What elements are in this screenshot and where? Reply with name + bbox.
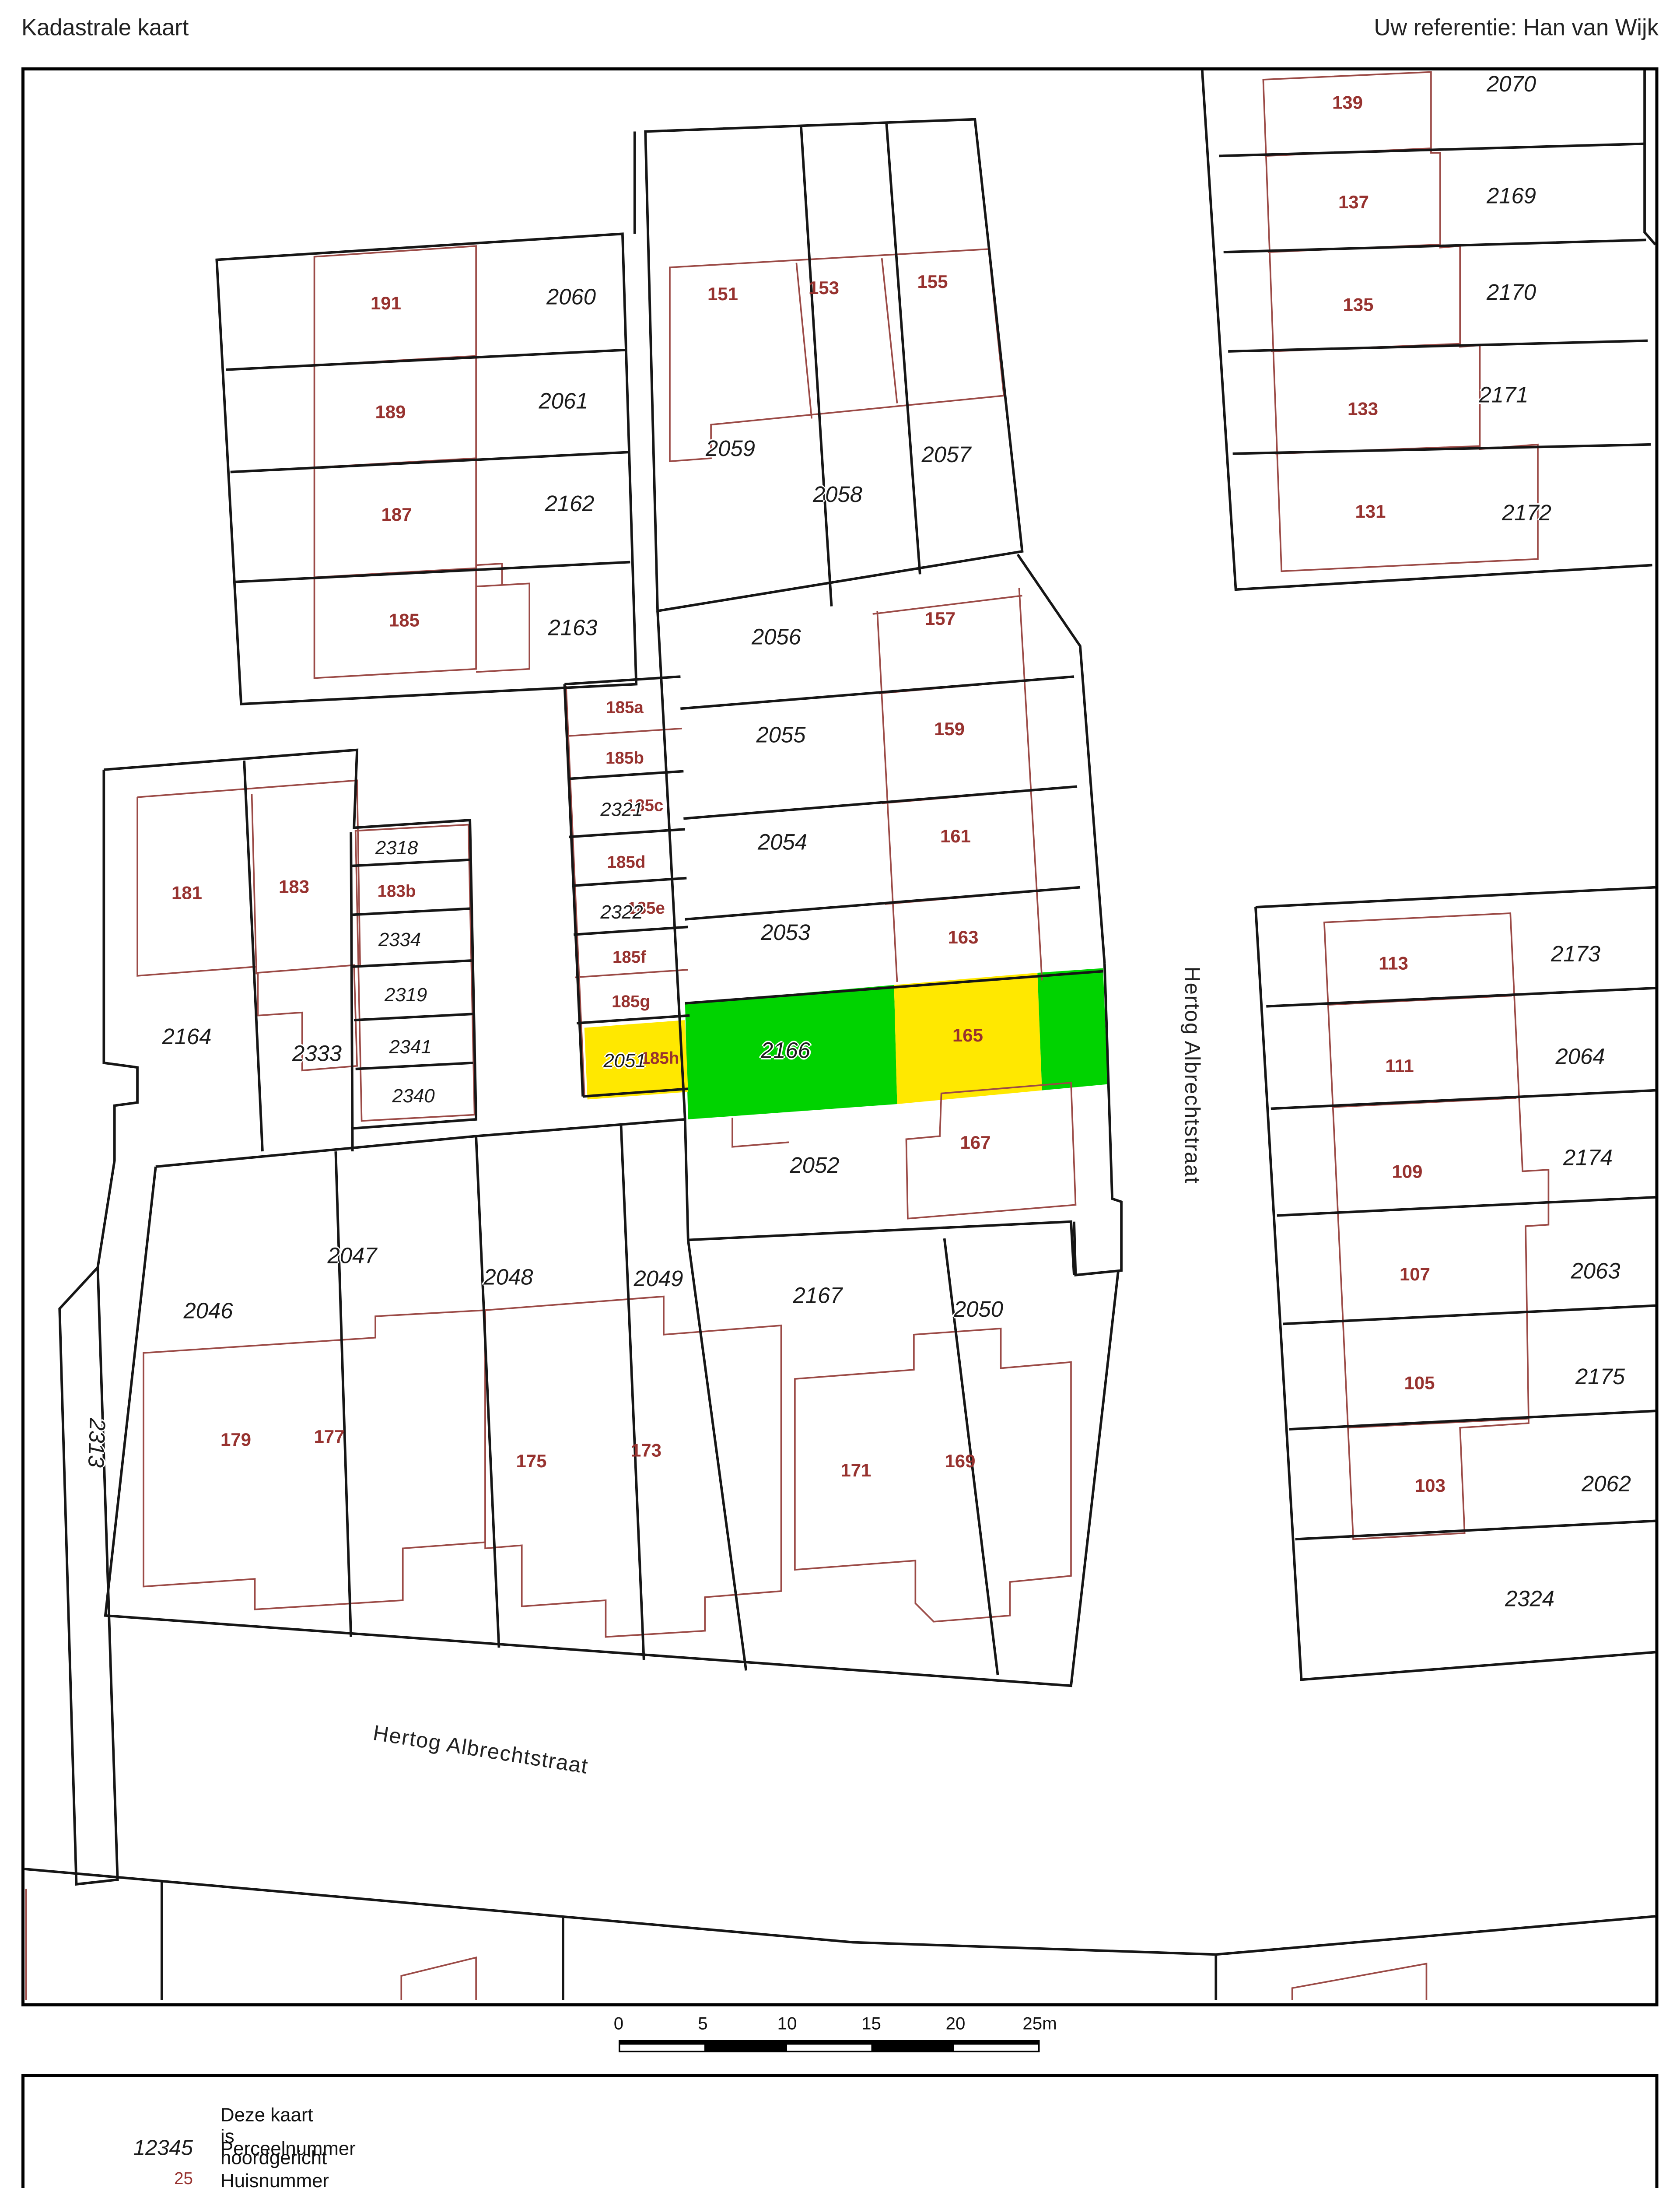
house-number-label: 185b bbox=[605, 751, 644, 768]
house-number-label: 107 bbox=[1400, 1265, 1430, 1283]
house-number-label: 139 bbox=[1332, 94, 1363, 112]
page-title: Kadastrale kaart bbox=[21, 15, 189, 42]
house-number-label: 159 bbox=[934, 720, 965, 738]
scale-bar bbox=[619, 2040, 1040, 2052]
house-number-label: 185h bbox=[641, 1052, 679, 1069]
scalebar-tick-label: 25m bbox=[1022, 2016, 1057, 2034]
scalebar-segment bbox=[955, 2045, 1038, 2051]
parcel-number-label: 2340 bbox=[392, 1087, 434, 1106]
legend-item-label: Perceelnummer bbox=[220, 2137, 356, 2159]
parcel-number-label: 2333 bbox=[292, 1044, 342, 1066]
house-number-label: 169 bbox=[945, 1452, 975, 1470]
legend-parcelnumber-sample: 12345 bbox=[133, 2134, 193, 2159]
house-number-label: 111 bbox=[1385, 1057, 1414, 1075]
house-number-label: 163 bbox=[948, 928, 978, 947]
house-number-label: 105 bbox=[1404, 1374, 1435, 1392]
house-number-label: 181 bbox=[171, 884, 202, 902]
map-geometry bbox=[24, 70, 1655, 2003]
scalebar-tick-label: 0 bbox=[614, 2016, 623, 2034]
parcel-number-label: 2051 bbox=[603, 1052, 646, 1071]
cadastral-map: 1911891871851511531551571591611631651671… bbox=[21, 67, 1659, 2006]
parcel-number-label: 2057 bbox=[922, 445, 971, 468]
parcel-number-label: 2319 bbox=[385, 986, 427, 1005]
parcel-number-label: 2056 bbox=[752, 628, 801, 650]
parcel-number-label: 2175 bbox=[1575, 1367, 1625, 1390]
parcel-number-label: 2313 bbox=[83, 1418, 107, 1468]
parcel-number-label: 2166 bbox=[761, 1041, 810, 1063]
parcel-number-label: 2062 bbox=[1582, 1475, 1631, 1497]
house-number-label: 103 bbox=[1415, 1476, 1445, 1495]
kadastrale-kaart-page: Kadastrale kaart Uw referentie: Han van … bbox=[0, 0, 1680, 2188]
parcel-number-label: 2060 bbox=[546, 288, 596, 310]
parcel-number-label: 2053 bbox=[761, 923, 810, 946]
selected-parcel-2166-fill-east bbox=[1037, 968, 1107, 1090]
house-number-label: 157 bbox=[925, 610, 955, 628]
parcel-number-label: 2048 bbox=[484, 1268, 533, 1290]
house-number-label: 131 bbox=[1355, 502, 1386, 521]
parcel-number-label: 2059 bbox=[706, 439, 755, 462]
house-number-label: 185d bbox=[607, 856, 646, 873]
parcel-number-label: 2172 bbox=[1502, 504, 1551, 526]
parcel-number-label: 2169 bbox=[1487, 186, 1536, 209]
scalebar-segment bbox=[871, 2045, 955, 2051]
parcel-number-label: 2064 bbox=[1556, 1047, 1605, 1069]
parcel-number-label: 2058 bbox=[813, 485, 862, 508]
parcel-number-label: 2162 bbox=[545, 494, 595, 517]
house-number-label: 187 bbox=[381, 505, 412, 524]
parcel-number-label: 2047 bbox=[328, 1246, 377, 1269]
parcel-number-label: 2170 bbox=[1487, 283, 1536, 305]
house-number-label: 151 bbox=[707, 285, 738, 303]
house-number-label: 133 bbox=[1347, 400, 1378, 418]
house-number-label: 113 bbox=[1379, 954, 1408, 973]
house-number-label: 161 bbox=[940, 827, 971, 845]
house-number-label: 137 bbox=[1338, 193, 1369, 211]
house-number-label: 175 bbox=[516, 1452, 546, 1470]
scalebar-tick-label: 5 bbox=[698, 2016, 707, 2034]
house-number-label: 177 bbox=[314, 1427, 344, 1446]
house-number-label: 167 bbox=[960, 1133, 990, 1152]
house-number-label: 153 bbox=[808, 279, 839, 297]
parcel-number-label: 2341 bbox=[389, 1038, 431, 1057]
parcel-number-label: 2173 bbox=[1551, 945, 1600, 967]
house-number-label: 173 bbox=[631, 1441, 661, 1460]
parcel-number-label: 2046 bbox=[184, 1301, 233, 1324]
parcel-number-label: 2167 bbox=[793, 1286, 843, 1308]
house-number-label: 185a bbox=[606, 701, 644, 718]
legend-symbol-none bbox=[49, 2101, 196, 2129]
parcel-number-label: 2322 bbox=[600, 903, 643, 922]
scalebar-tick-label: 10 bbox=[777, 2016, 797, 2034]
scalebar-tick-label: 15 bbox=[861, 2016, 881, 2034]
scalebar-segment bbox=[787, 2045, 871, 2051]
legend-symbol-house-number: 25 bbox=[49, 2167, 196, 2188]
house-number-label: 183b bbox=[378, 884, 416, 901]
parcel-number-label: 2063 bbox=[1571, 1262, 1620, 1284]
scalebar-segment bbox=[704, 2045, 787, 2051]
parcel-number-label: 2334 bbox=[378, 931, 421, 950]
parcel-number-label: 2054 bbox=[758, 833, 807, 855]
house-number-label: 183 bbox=[279, 878, 309, 896]
house-number-label: 185f bbox=[612, 950, 646, 968]
legend-symbol-parcel-number: 12345 bbox=[49, 2134, 196, 2162]
parcel-number-label: 2318 bbox=[375, 839, 418, 858]
parcel-number-label: 2163 bbox=[548, 618, 598, 641]
scalebar-segment bbox=[620, 2045, 704, 2051]
legend-item-label: Huisnummer bbox=[220, 2170, 329, 2188]
house-number-label: 109 bbox=[1392, 1163, 1422, 1181]
parcel-number-label: 2324 bbox=[1505, 1589, 1554, 1612]
scalebar-tick-label: 20 bbox=[946, 2016, 966, 2034]
street-name-label: Hertog Albrechtstraat bbox=[1182, 966, 1204, 1184]
legend-item-label: Deze kaart is noordgericht bbox=[220, 2104, 327, 2169]
parcel-number-label: 2070 bbox=[1487, 75, 1536, 97]
parcel-number-label: 2055 bbox=[756, 726, 806, 748]
parcel-number-label: 2171 bbox=[1479, 386, 1529, 408]
parcel-number-label: 2321 bbox=[600, 801, 643, 820]
house-number-label: 189 bbox=[375, 403, 406, 421]
reference-text: Uw referentie: Han van Wijk bbox=[1374, 15, 1659, 42]
parcel-number-label: 2174 bbox=[1563, 1148, 1613, 1171]
house-number-label: 191 bbox=[371, 294, 401, 312]
legend-panel: Deze kaart is noordgericht12345Perceelnu… bbox=[21, 2074, 1659, 2188]
parcel-number-label: 2164 bbox=[162, 1027, 212, 1050]
legend-housenumber-sample: 25 bbox=[174, 2170, 193, 2188]
house-number-label: 155 bbox=[917, 273, 948, 291]
house-number-label: 185 bbox=[389, 611, 420, 630]
house-number-label: 135 bbox=[1343, 296, 1373, 314]
parcel-number-label: 2050 bbox=[954, 1300, 1003, 1322]
parcel-number-label: 2052 bbox=[790, 1156, 840, 1178]
house-number-label: 179 bbox=[220, 1431, 251, 1449]
parcel-number-label: 2049 bbox=[634, 1269, 683, 1292]
house-number-label: 185g bbox=[612, 995, 650, 1012]
house-number-label: 165 bbox=[952, 1026, 983, 1045]
house-number-label: 171 bbox=[840, 1461, 871, 1480]
parcel-number-label: 2061 bbox=[539, 392, 588, 414]
